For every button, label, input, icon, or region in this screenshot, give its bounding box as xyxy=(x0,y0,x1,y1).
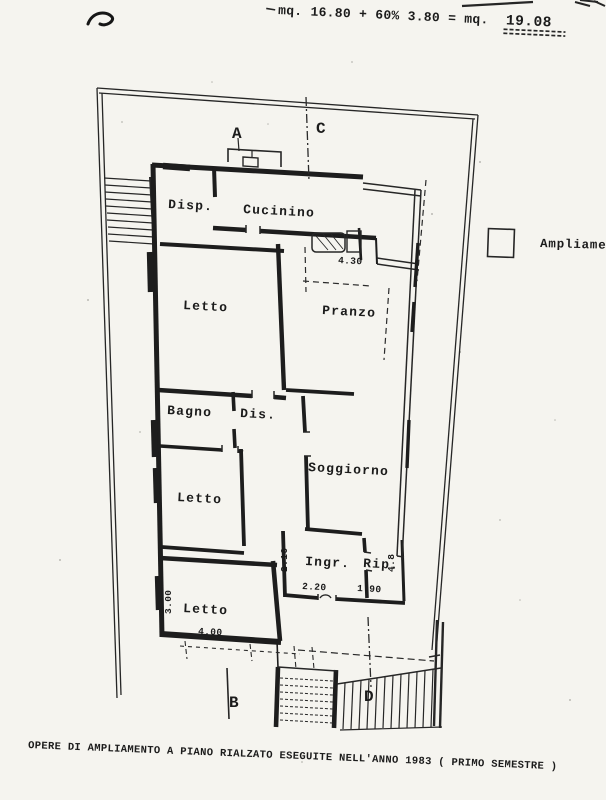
room-label-dis: Dis. xyxy=(240,406,277,423)
room-label-bagno: Bagno xyxy=(167,403,213,420)
room-label-disp: Disp. xyxy=(168,197,214,214)
room-label-letto-3: Letto xyxy=(183,601,229,618)
floor-plan-drawing: mq. 16.80 + 60% 3.80 = mq. 19.08 xyxy=(0,0,606,800)
dim-3-00: 3.00 xyxy=(163,590,174,614)
dim-2-20: 2.20 xyxy=(302,581,327,593)
dim-1-90: 1.90 xyxy=(357,583,382,595)
room-label-pranzo: Pranzo xyxy=(322,303,377,321)
dim-2-16: 2.16 xyxy=(279,548,290,572)
section-letter-a: A xyxy=(232,125,242,143)
room-label-ingr: Ingr. xyxy=(305,554,351,571)
legend-label: Ampliamen xyxy=(540,237,606,253)
dim-4-30: 4.30 xyxy=(338,255,363,267)
dim-4-00: 4.00 xyxy=(198,626,223,638)
area-formula-result: 19.08 xyxy=(506,13,553,31)
section-letter-d: D xyxy=(364,688,374,706)
section-letter-c: C xyxy=(316,120,326,138)
scanned-floor-plan-page: mq. 16.80 + 60% 3.80 = mq. 19.08 xyxy=(0,0,606,800)
dim-4-8: 4.8 xyxy=(386,554,397,572)
room-label-letto-2: Letto xyxy=(177,490,223,507)
room-label-letto-1: Letto xyxy=(183,298,229,315)
section-letter-b: B xyxy=(229,694,239,712)
